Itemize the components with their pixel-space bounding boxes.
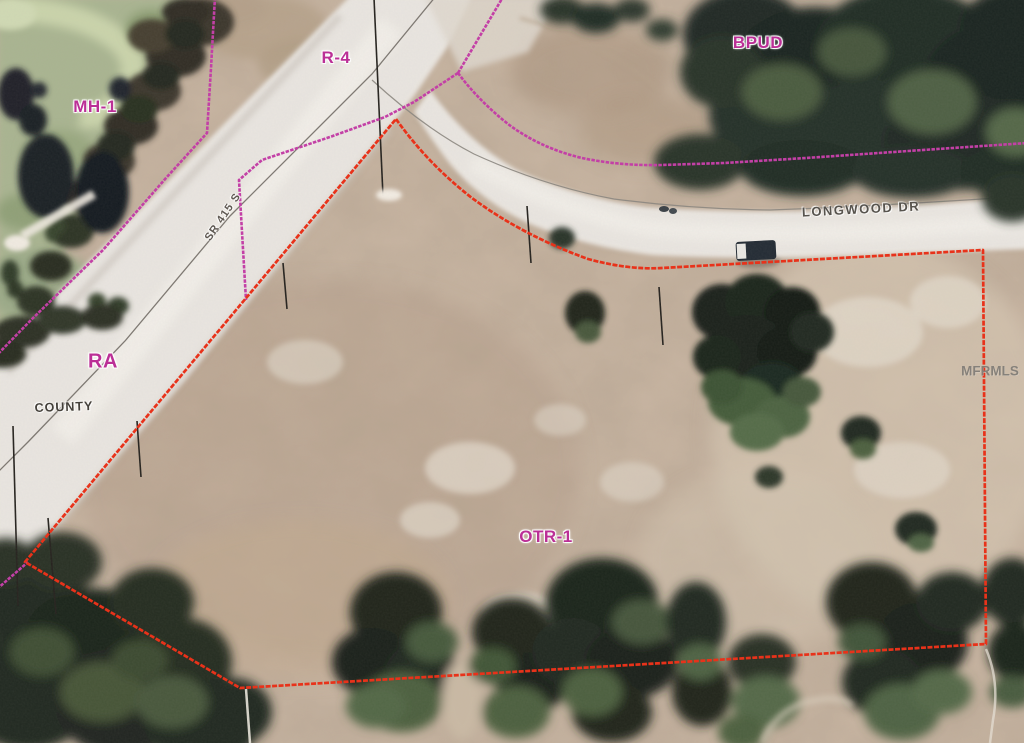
aerial-photo-layers — [0, 0, 1024, 743]
aerial-parcel-map: MH-1 R-4 BPUD RA OTR-1 SR 415 S COUNTY L… — [0, 0, 1024, 743]
photo-grain — [0, 0, 1024, 743]
